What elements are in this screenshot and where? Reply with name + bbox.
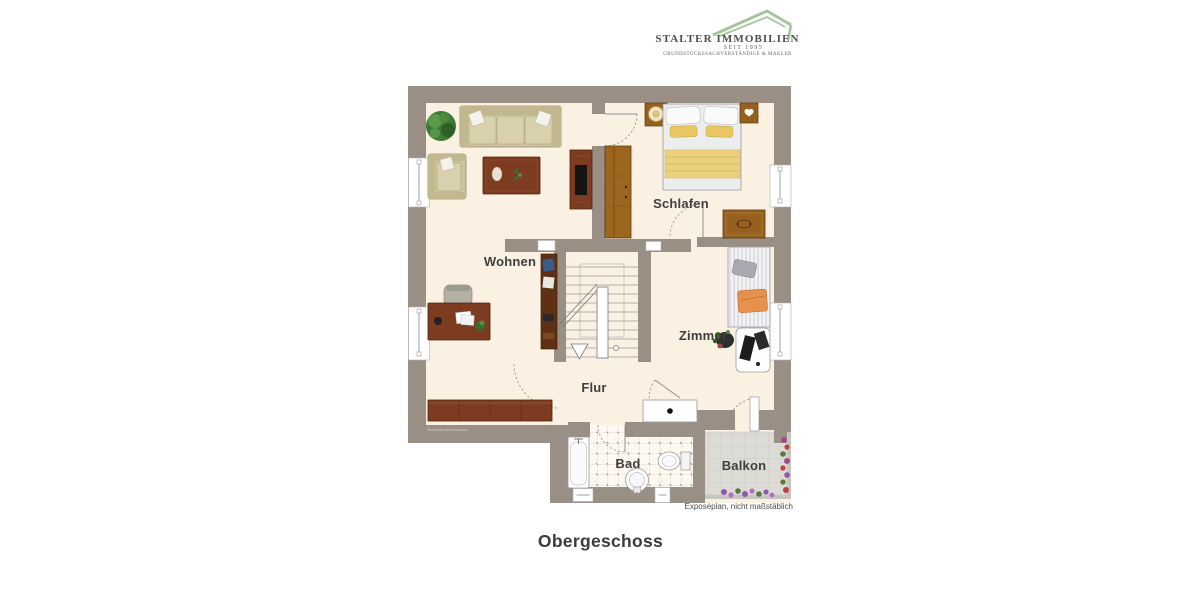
stair-stringer <box>597 287 608 358</box>
balcony-door-leaf <box>750 397 759 431</box>
double-bed <box>663 104 741 190</box>
plan-watermark: Illustration@immocado <box>427 427 469 432</box>
toilet <box>658 452 690 470</box>
room-label-bad: Bad <box>615 456 640 471</box>
headphones-icon <box>434 317 442 325</box>
bookshelf <box>541 254 557 349</box>
armchair <box>428 154 466 199</box>
room-label-wohnen: Wohnen <box>484 254 536 269</box>
page-title: Obergeschoss <box>408 531 793 552</box>
plan-disclaimer: Exposéplan, nicht maßstäblich <box>408 502 793 511</box>
balcony-railing-bottom <box>705 495 791 499</box>
zimmer-desk <box>736 328 770 372</box>
logo-subtitle: GRUNDSTÜCKSSACHVERSTÄNDIGE & MAKLER <box>655 52 800 57</box>
room-label-zimmer: Zimmer <box>679 328 727 343</box>
window-right-2 <box>770 303 791 360</box>
room-label-flur: Flur <box>581 380 606 395</box>
floor-plan: Wohnen Schlafen Zimmer Flur Bad Balkon I… <box>408 86 793 503</box>
tv-board <box>570 150 592 209</box>
hall-cabinet <box>643 400 697 422</box>
sideboard <box>428 400 552 421</box>
logo-tagline: SEIT 1995 <box>671 45 816 51</box>
window-left-2 <box>409 307 430 360</box>
dresser <box>723 210 765 238</box>
wardrobe <box>605 146 631 238</box>
coffee-table <box>483 157 540 194</box>
window-left-1 <box>409 158 430 207</box>
plant <box>426 111 456 141</box>
page: { "logo": { "name_display": "STALTER IMM… <box>0 0 1200 600</box>
nightstand-right <box>740 103 758 123</box>
single-bed <box>728 247 770 327</box>
room-label-schlafen: Schlafen <box>653 196 709 211</box>
window-bath-2 <box>655 488 670 503</box>
window-right-1 <box>770 165 791 207</box>
company-logo: STALTER IMMOBILIEN SEIT 1995 GRUNDSTÜCKS… <box>655 3 800 59</box>
bathtub <box>568 437 589 488</box>
room-label-balkon: Balkon <box>722 458 767 473</box>
window-bath-1 <box>573 489 593 502</box>
logo-name: STALTER IMMOBILIEN <box>655 33 800 45</box>
sofa <box>460 106 561 147</box>
